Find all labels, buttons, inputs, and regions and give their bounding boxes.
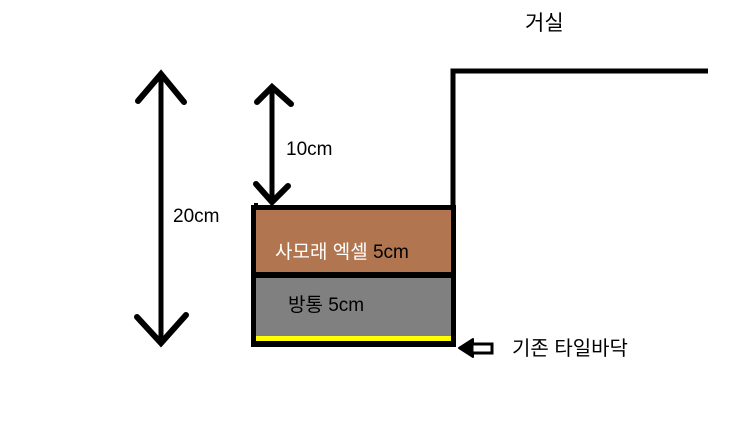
- screed-name-label: 사모래 엑셀: [275, 242, 368, 263]
- gap-height-label: 10cm: [286, 139, 332, 161]
- existing-tile-label: 기존 타일바닥: [512, 338, 628, 361]
- tile-strip: [256, 336, 451, 341]
- screed-size-label: 5cm: [373, 242, 409, 263]
- diagram-canvas: 거실 20cm 10cm 사모래 엑셀 5cm 방통 5cm 기존 타일바닥: [0, 0, 750, 430]
- room-label: 거실: [525, 12, 564, 36]
- concrete-label: 방통 5cm: [288, 295, 364, 317]
- tile-pointer-arrow: [459, 339, 492, 357]
- total-height-label: 20cm: [173, 206, 219, 228]
- screed-label: 사모래 엑셀 5cm: [275, 242, 409, 264]
- layer-stack: [251, 205, 456, 347]
